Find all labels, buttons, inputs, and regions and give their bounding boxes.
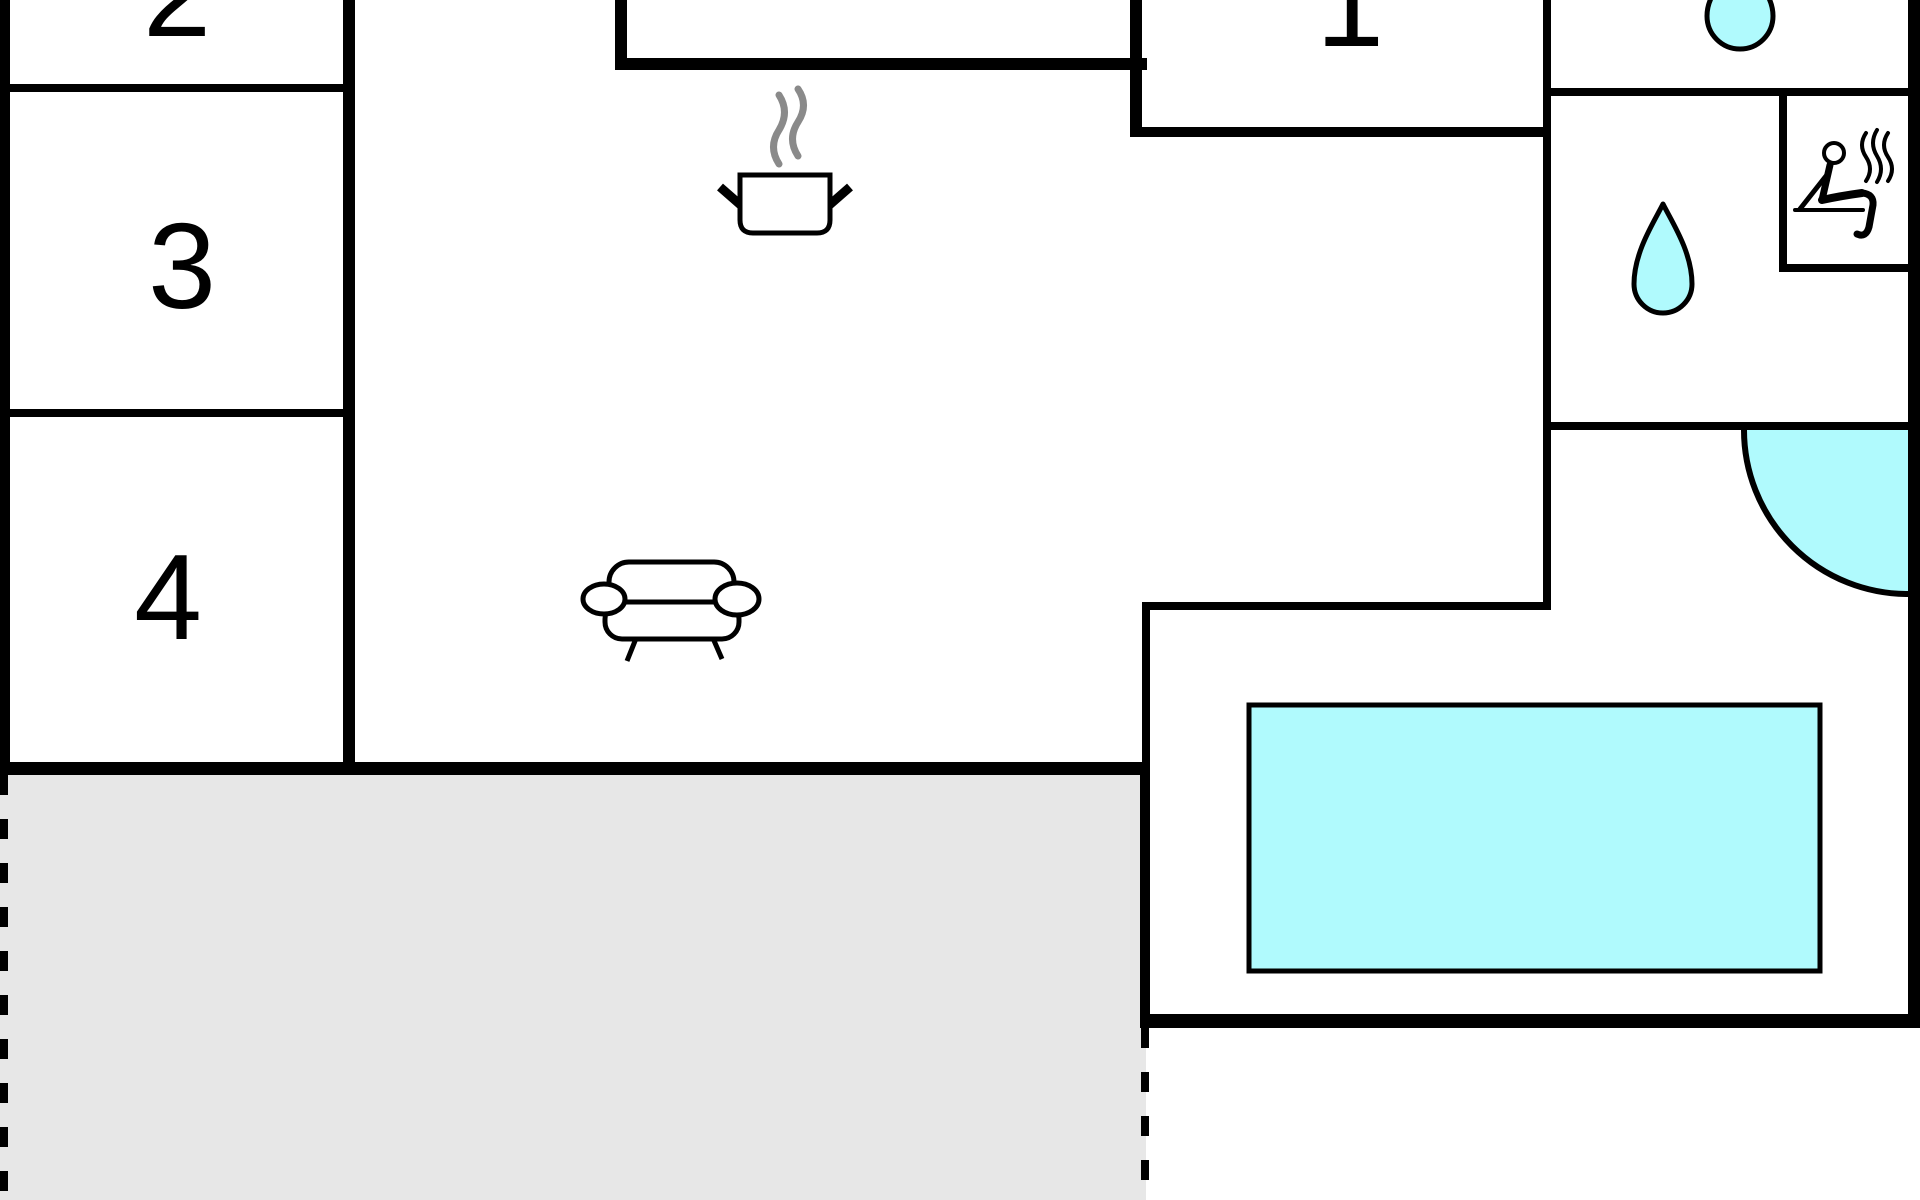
sauna-icon	[1795, 130, 1892, 235]
sofa-icon	[583, 562, 759, 661]
water-drop-small-icon	[1707, 0, 1773, 49]
water-drop-large-icon	[1634, 204, 1692, 313]
door-swing-icon	[1744, 430, 1908, 594]
fixtures-layer	[0, 0, 1920, 1200]
floor-plan: 2 3 4 1	[0, 0, 1920, 1200]
steam-line-right	[793, 89, 804, 156]
sauna-person-leg-foot	[1857, 193, 1873, 235]
pool-icon	[1249, 705, 1820, 971]
sofa-armrest-left	[583, 584, 625, 614]
sauna-heat-waves	[1862, 130, 1892, 182]
pot-body	[740, 175, 830, 233]
cooking-pot-icon	[720, 89, 850, 233]
sofa-armrest-right	[715, 583, 759, 615]
pool-basin	[1249, 705, 1820, 971]
sauna-person-thigh	[1822, 193, 1862, 200]
sauna-person-head	[1824, 143, 1844, 163]
steam-line-left	[774, 95, 785, 164]
